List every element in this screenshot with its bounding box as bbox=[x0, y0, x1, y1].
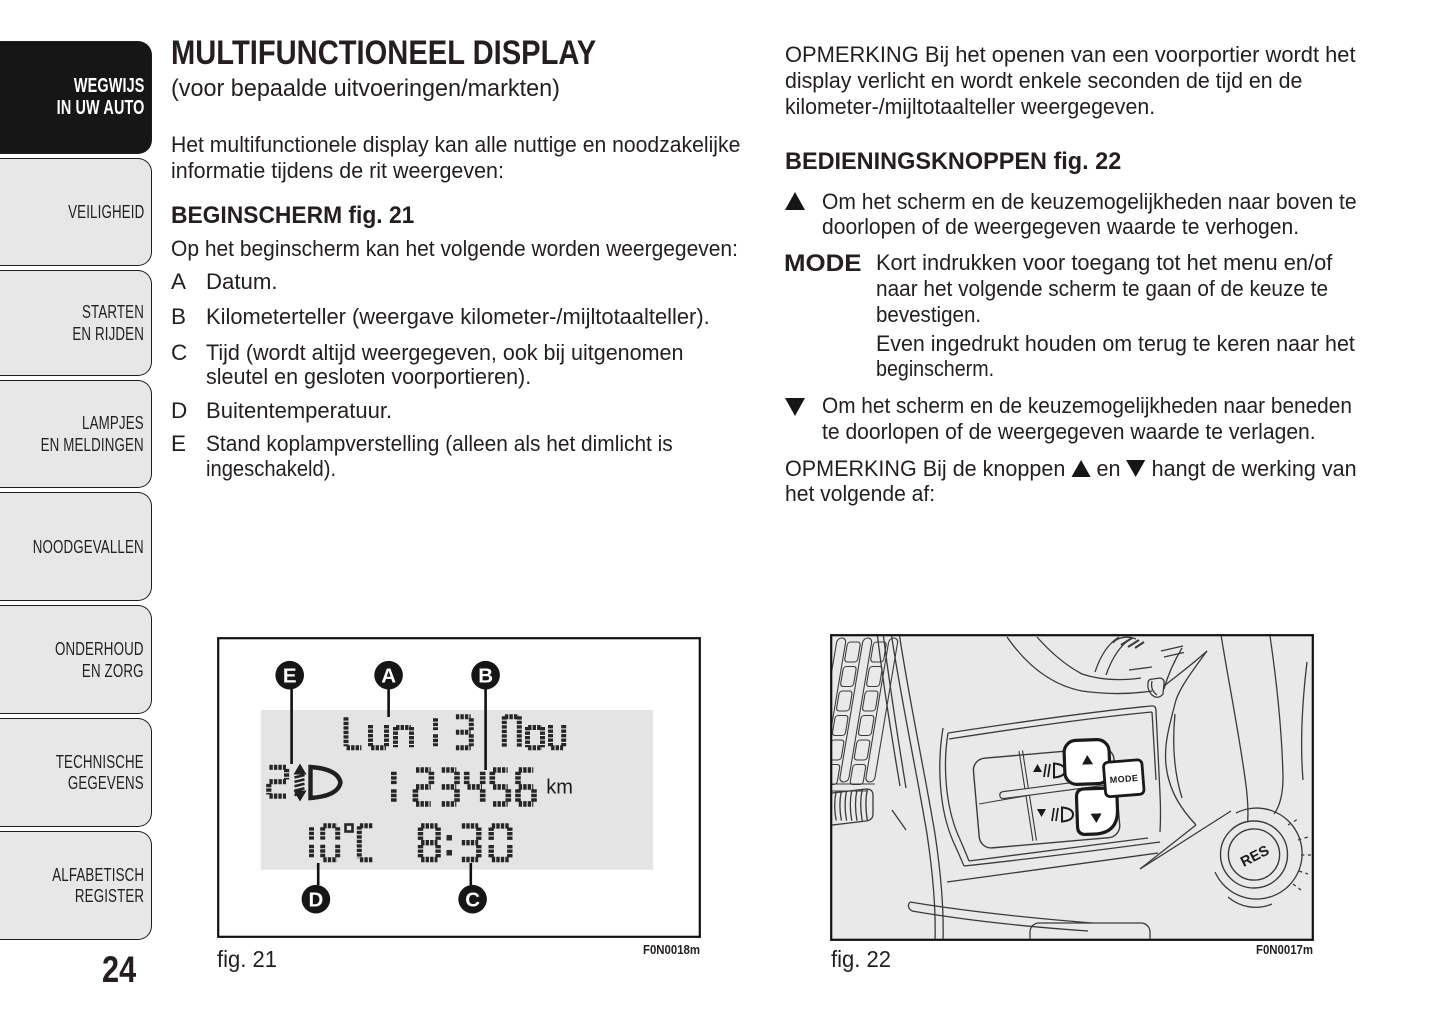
svg-text:B: B bbox=[478, 664, 493, 687]
svg-text:km: km bbox=[546, 776, 573, 798]
svg-text:C: C bbox=[465, 888, 480, 911]
svg-text:A: A bbox=[381, 664, 396, 687]
svg-text:E: E bbox=[282, 664, 296, 687]
svg-text:D: D bbox=[308, 888, 323, 911]
